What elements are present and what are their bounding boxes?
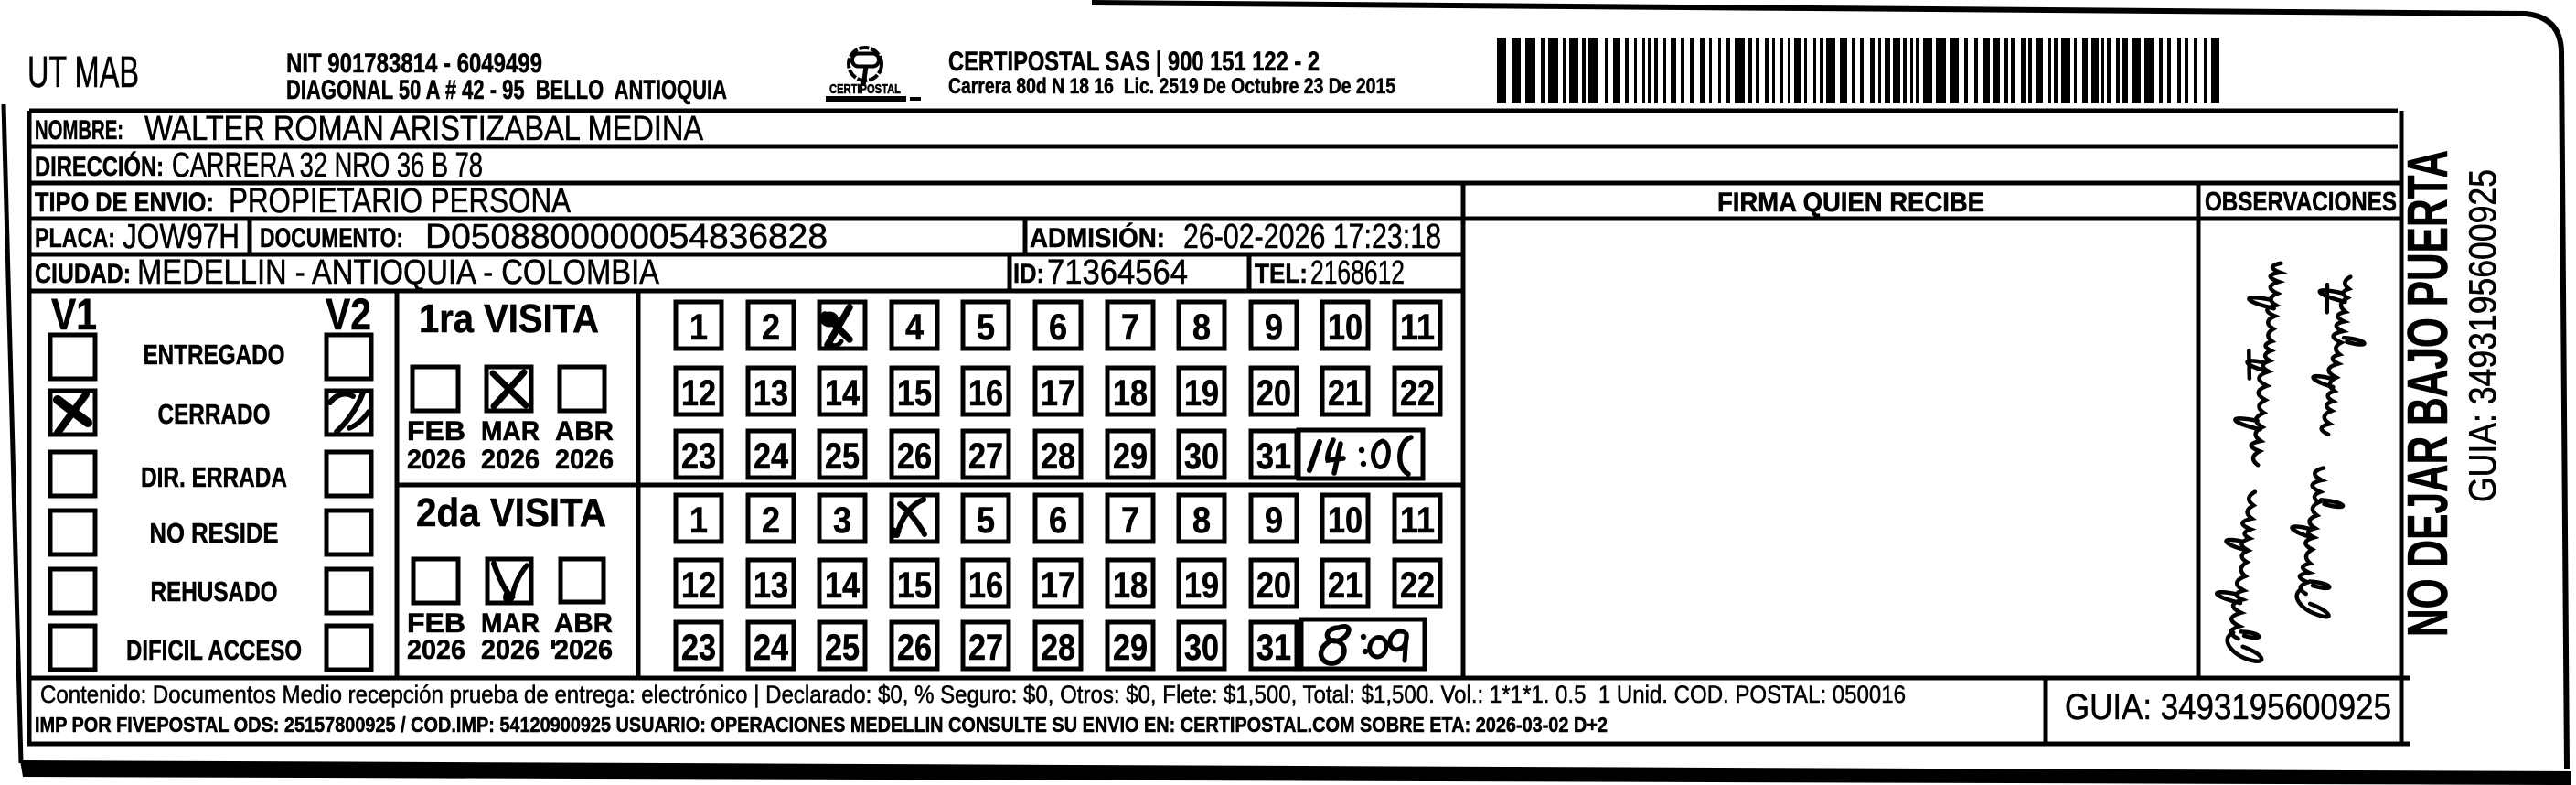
svg-text:19: 19: [1184, 565, 1219, 606]
svg-text:11: 11: [1400, 500, 1435, 541]
svg-text:1: 1: [689, 500, 708, 541]
svg-text:21: 21: [1328, 565, 1363, 606]
svg-text:17: 17: [1041, 565, 1075, 606]
svg-text:MAR: MAR: [481, 416, 540, 446]
svg-text:23: 23: [681, 628, 716, 668]
svg-text:27: 27: [968, 628, 1003, 668]
svg-text:18: 18: [1113, 565, 1148, 606]
svg-text:V2: V2: [326, 291, 371, 339]
svg-text:26-02-2026 17:23:18: 26-02-2026 17:23:18: [1183, 218, 1441, 256]
svg-text:7: 7: [1121, 307, 1139, 348]
svg-text:26: 26: [897, 436, 932, 477]
svg-text:GUIA: 3493195600925: GUIA: 3493195600925: [2461, 169, 2504, 502]
svg-text:CIUDAD:: CIUDAD:: [35, 259, 131, 289]
svg-text:30: 30: [1184, 628, 1219, 668]
svg-text:8: 8: [1192, 307, 1211, 348]
svg-text:2da VISITA: 2da VISITA: [416, 490, 606, 535]
svg-text:28: 28: [1041, 628, 1075, 668]
svg-text:REHUSADO: REHUSADO: [151, 575, 278, 608]
svg-text:ABR: ABR: [555, 416, 614, 446]
svg-text:13: 13: [754, 373, 788, 414]
svg-text:28: 28: [1041, 436, 1075, 477]
svg-text:TIPO DE ENVIO:: TIPO DE ENVIO:: [35, 188, 214, 218]
svg-text:WALTER ROMAN ARISTIZABAL MEDIN: WALTER ROMAN ARISTIZABAL MEDINA: [144, 110, 704, 148]
svg-text:FIRMA QUIEN RECIBE: FIRMA QUIEN RECIBE: [1717, 188, 1984, 218]
svg-text:24: 24: [754, 628, 789, 668]
svg-text:20: 20: [1256, 373, 1291, 414]
svg-text:12: 12: [681, 373, 716, 414]
svg-text:27: 27: [968, 436, 1003, 477]
svg-text:2026: 2026: [555, 445, 614, 475]
svg-text:NO RESIDE: NO RESIDE: [150, 517, 279, 549]
svg-text:71364564: 71364564: [1047, 253, 1188, 292]
svg-text:1ra VISITA: 1ra VISITA: [419, 296, 599, 341]
svg-text:5: 5: [977, 307, 995, 348]
svg-text:NOMBRE:: NOMBRE:: [35, 115, 123, 145]
svg-text:25: 25: [825, 436, 860, 477]
svg-text:ID:: ID:: [1013, 259, 1044, 289]
svg-text:22: 22: [1400, 373, 1435, 414]
svg-text:6: 6: [1049, 500, 1067, 541]
svg-text:2: 2: [762, 307, 780, 348]
svg-text:15: 15: [897, 565, 932, 606]
svg-text:15: 15: [897, 373, 932, 414]
svg-text:TEL:: TEL:: [1255, 259, 1308, 289]
svg-text:25: 25: [825, 628, 860, 668]
svg-text:7: 7: [1121, 500, 1139, 541]
svg-text:14: 14: [825, 565, 860, 606]
svg-text:11: 11: [1400, 307, 1435, 348]
svg-text:16: 16: [968, 373, 1003, 414]
svg-text:18: 18: [1113, 373, 1148, 414]
svg-text:10: 10: [1328, 500, 1363, 541]
svg-text:Carrera 80d N 18 16 Lic. 2519: Carrera 80d N 18 16 Lic. 2519 De Octubre…: [948, 74, 1395, 99]
svg-text:5: 5: [977, 500, 995, 541]
svg-text:CERTIPOSTAL SAS | 900 151 122: CERTIPOSTAL SAS | 900 151 122 - 2: [948, 47, 1320, 77]
svg-text:23: 23: [681, 436, 716, 477]
svg-text:10: 10: [1328, 307, 1363, 348]
svg-text:20: 20: [1256, 565, 1291, 606]
svg-text:17: 17: [1041, 373, 1075, 414]
svg-text:22: 22: [1400, 565, 1435, 606]
svg-text:PROPIETARIO PERSONA: PROPIETARIO PERSONA: [229, 182, 572, 220]
svg-text:4: 4: [905, 307, 925, 348]
svg-text:PLACA:: PLACA:: [35, 223, 115, 253]
svg-text:2026: 2026: [407, 635, 465, 665]
svg-text:9: 9: [1265, 500, 1283, 541]
svg-text:24: 24: [754, 436, 789, 477]
svg-text:6: 6: [1049, 307, 1067, 348]
svg-text:Contenido: Documentos Medio re: Contenido: Documentos Medio recepción pr…: [40, 681, 1906, 708]
svg-text:3: 3: [833, 500, 851, 541]
svg-text:13: 13: [754, 565, 788, 606]
svg-text:2026: 2026: [554, 635, 613, 665]
svg-text:GUIA: 3493195600925: GUIA: 3493195600925: [2065, 687, 2391, 727]
svg-text:V1: V1: [51, 291, 97, 339]
svg-text:OBSERVACIONES: OBSERVACIONES: [2205, 188, 2397, 217]
svg-text:JOW97H: JOW97H: [123, 218, 240, 256]
svg-text:21: 21: [1328, 373, 1363, 414]
svg-text:29: 29: [1113, 436, 1148, 477]
svg-text:9: 9: [1265, 307, 1283, 348]
svg-text:DIR. ERRADA: DIR. ERRADA: [141, 461, 287, 493]
svg-text:DIFICIL ACCESO: DIFICIL ACCESO: [126, 634, 302, 666]
svg-text:19: 19: [1184, 373, 1219, 414]
svg-text:2168612: 2168612: [1310, 253, 1405, 291]
svg-text:2026: 2026: [407, 445, 465, 475]
svg-text:29: 29: [1113, 628, 1148, 668]
svg-text:31: 31: [1256, 628, 1291, 668]
svg-text:26: 26: [897, 628, 932, 668]
svg-text:2: 2: [762, 500, 780, 541]
svg-text:UT MAB: UT MAB: [27, 48, 139, 97]
svg-text:1: 1: [689, 307, 708, 348]
svg-text:NO DEJAR BAJO PUERTA: NO DEJAR BAJO PUERTA: [2397, 150, 2460, 637]
svg-text:MEDELLIN - ANTIOQUIA - COLOMBI: MEDELLIN - ANTIOQUIA - COLOMBIA: [137, 253, 660, 292]
svg-text:31: 31: [1256, 436, 1291, 477]
svg-text:2026: 2026: [481, 635, 540, 665]
svg-text:30: 30: [1184, 436, 1219, 477]
svg-text:ENTREGADO: ENTREGADO: [144, 339, 285, 371]
svg-text:CERTIPOSTAL: CERTIPOSTAL: [829, 81, 901, 97]
svg-text:CERRADO: CERRADO: [158, 398, 271, 430]
svg-text:D0508800000054836828: D0508800000054836828: [425, 218, 828, 256]
svg-text:DOCUMENTO:: DOCUMENTO:: [260, 223, 403, 253]
svg-text:DIRECCIÓN:: DIRECCIÓN:: [35, 151, 164, 182]
svg-text:14: 14: [825, 373, 860, 414]
svg-text:16: 16: [968, 565, 1003, 606]
svg-text:ADMISIÓN:: ADMISIÓN:: [1030, 222, 1165, 253]
svg-text:8: 8: [1192, 500, 1211, 541]
svg-text:FEB: FEB: [407, 416, 465, 446]
svg-text:2026: 2026: [481, 445, 540, 475]
svg-text:IMP POR FIVEPOSTAL ODS: 251578: IMP POR FIVEPOSTAL ODS: 25157800925 / CO…: [35, 713, 1608, 737]
svg-text:12: 12: [681, 565, 716, 606]
svg-text:CARRERA 32 NRO 36 B 78: CARRERA 32 NRO 36 B 78: [172, 146, 483, 185]
svg-text:DIAGONAL 50 A # 42 - 95 BELLO: DIAGONAL 50 A # 42 - 95 BELLO ANTIOQUIA: [286, 75, 727, 105]
